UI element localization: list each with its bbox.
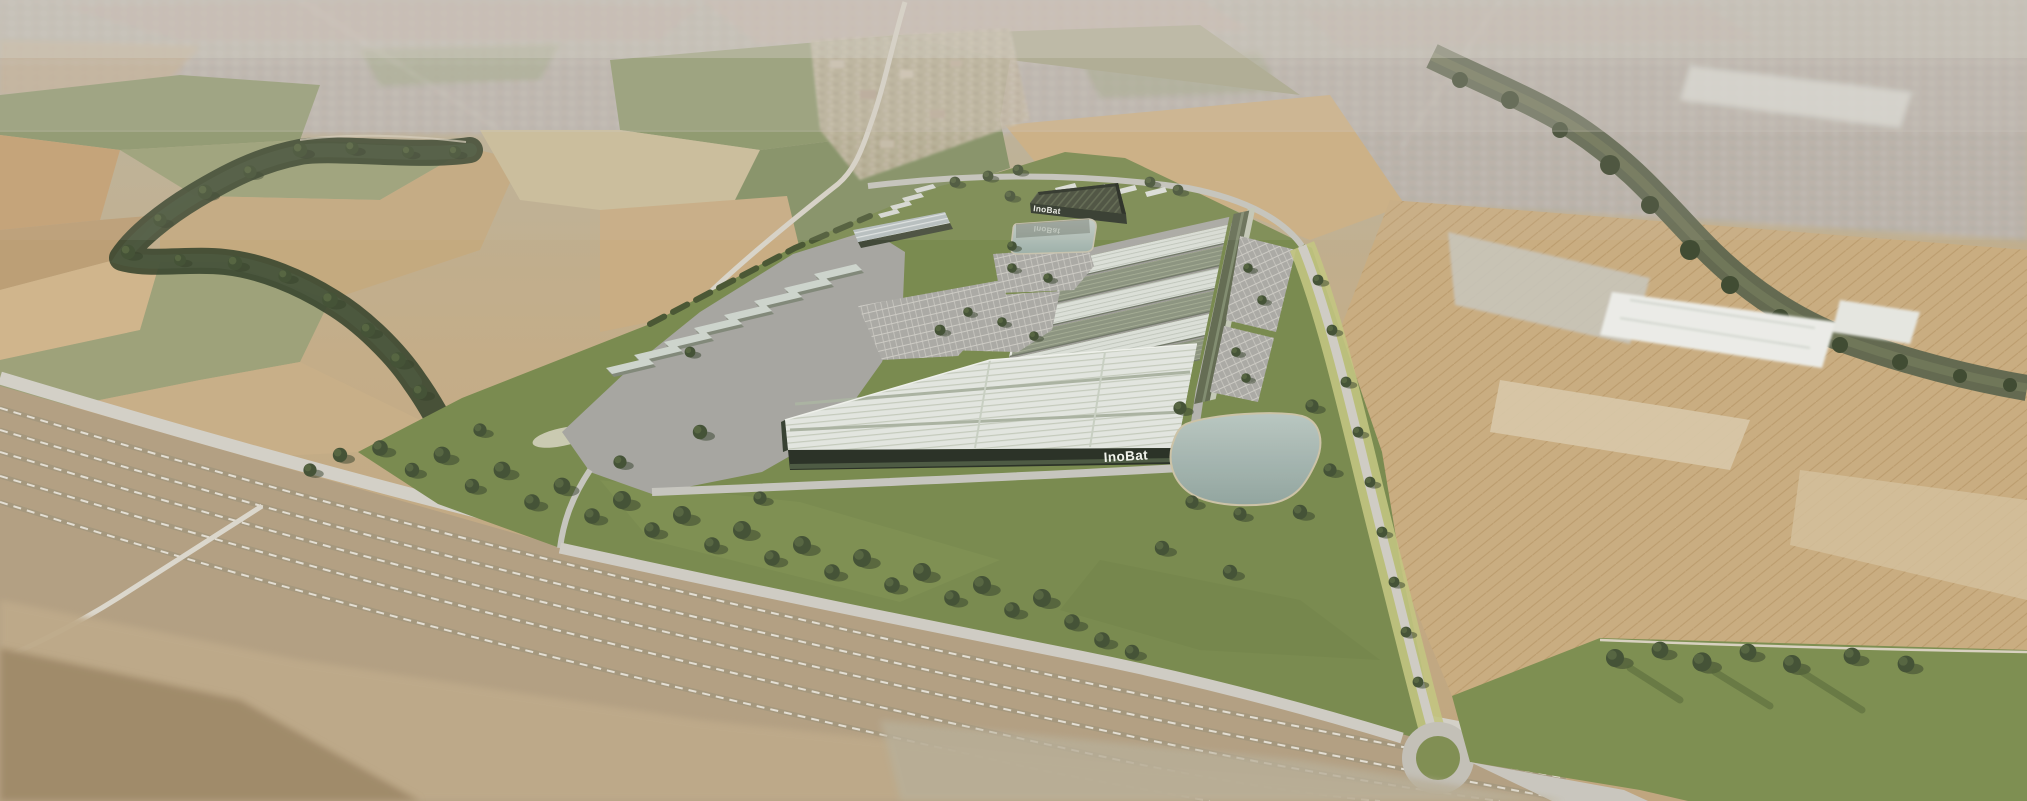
global-tint [0, 0, 2027, 801]
aerial-render-inobat-gigafactory: InoBat InoBat InoBat [0, 0, 2027, 801]
scene: InoBat InoBat InoBat [0, 0, 2027, 801]
